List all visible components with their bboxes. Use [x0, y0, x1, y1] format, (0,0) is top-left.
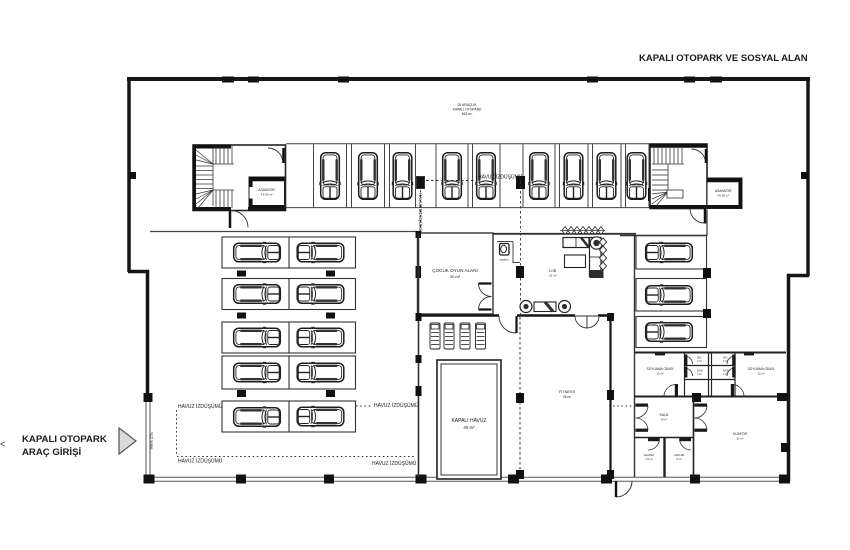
svg-text:FITNESS: FITNESS	[559, 390, 576, 394]
svg-text:SAUNA: SAUNA	[644, 453, 654, 457]
svg-text:6 m²: 6 m²	[676, 457, 681, 461]
svg-text:ÇOCUK OYUN ALANI: ÇOCUK OYUN ALANI	[432, 268, 477, 273]
svg-text:2 m²: 2 m²	[723, 373, 728, 376]
svg-text:HAVUZ İZDÜŞÜMÜ: HAVUZ İZDÜŞÜMÜ	[372, 460, 417, 467]
svg-text:40 m²: 40 m²	[463, 425, 475, 430]
svg-text:2 m²: 2 m²	[697, 373, 702, 376]
svg-text:12 m²: 12 m²	[656, 372, 663, 376]
svg-text:KAPALI OTOPARK VE SOSYAL ALAN: KAPALI OTOPARK VE SOSYAL ALAN	[639, 53, 808, 64]
svg-text:HAVUZ İZDÜŞÜMÜ: HAVUZ İZDÜŞÜMÜ	[418, 193, 423, 232]
svg-text:KALB: KALB	[660, 413, 669, 417]
svg-text:SOYUNMA ODASI: SOYUNMA ODASI	[647, 367, 674, 371]
svg-text:ASANSÖR: ASANSÖR	[258, 188, 275, 192]
svg-text:4.5 m²: 4.5 m²	[645, 457, 652, 461]
svg-text:KAPALI HAVUZ: KAPALI HAVUZ	[451, 418, 486, 424]
svg-text:WC: WC	[723, 356, 728, 360]
svg-text:KAPALI OTOPARK: KAPALI OTOPARK	[22, 434, 107, 445]
svg-text:663 m²: 663 m²	[462, 112, 473, 116]
svg-text:<: <	[0, 439, 5, 449]
svg-text:KAPALI OTOPARK: KAPALI OTOPARK	[453, 108, 483, 112]
svg-text:36 m²: 36 m²	[563, 395, 571, 399]
svg-text:30 m²: 30 m²	[450, 274, 461, 279]
svg-text:ARAÇ GİRİŞİ: ARAÇ GİRİŞİ	[22, 447, 81, 458]
svg-text:%15 rampa: %15 rampa	[150, 432, 154, 449]
svg-text:DUŞ: DUŞ	[697, 369, 703, 373]
svg-text:8 m²: 8 m²	[661, 418, 667, 422]
svg-text:16 m²: 16 m²	[549, 274, 557, 278]
svg-text:WC: WC	[697, 356, 702, 360]
svg-text:JAKUZİ: JAKUZİ	[674, 452, 685, 457]
svg-text:2 m²: 2 m²	[697, 360, 702, 363]
svg-text:12 m²: 12 m²	[757, 372, 764, 376]
svg-text:HAVUZ İZDÜŞÜMÜ: HAVUZ İZDÜŞÜMÜ	[374, 402, 419, 409]
svg-text:4.6 30 m²: 4.6 30 m²	[717, 194, 729, 198]
svg-text:KUAFÖR: KUAFÖR	[733, 432, 748, 436]
svg-text:HAVUZ İZDÜŞÜMÜ: HAVUZ İZDÜŞÜMÜ	[178, 403, 223, 410]
svg-text:2 m²: 2 m²	[723, 360, 728, 363]
svg-text:ASANSÖR: ASANSÖR	[715, 189, 732, 193]
svg-text:32 m²: 32 m²	[736, 437, 743, 441]
svg-text:SOYUNMA ODASI: SOYUNMA ODASI	[748, 367, 775, 371]
svg-text:lavabo: lavabo	[500, 258, 509, 262]
svg-text:25 ARAÇLIK: 25 ARAÇLIK	[457, 103, 477, 107]
svg-text:HAVUZ İZDÜŞÜMÜ: HAVUZ İZDÜŞÜMÜ	[178, 458, 223, 465]
svg-text:LOB: LOB	[549, 269, 557, 273]
svg-text:DUŞ: DUŞ	[723, 369, 729, 373]
svg-text:HAVUZ İZDÜŞÜMÜ: HAVUZ İZDÜŞÜMÜ	[478, 174, 523, 181]
svg-text:4.6 30 m²: 4.6 30 m²	[261, 193, 273, 197]
